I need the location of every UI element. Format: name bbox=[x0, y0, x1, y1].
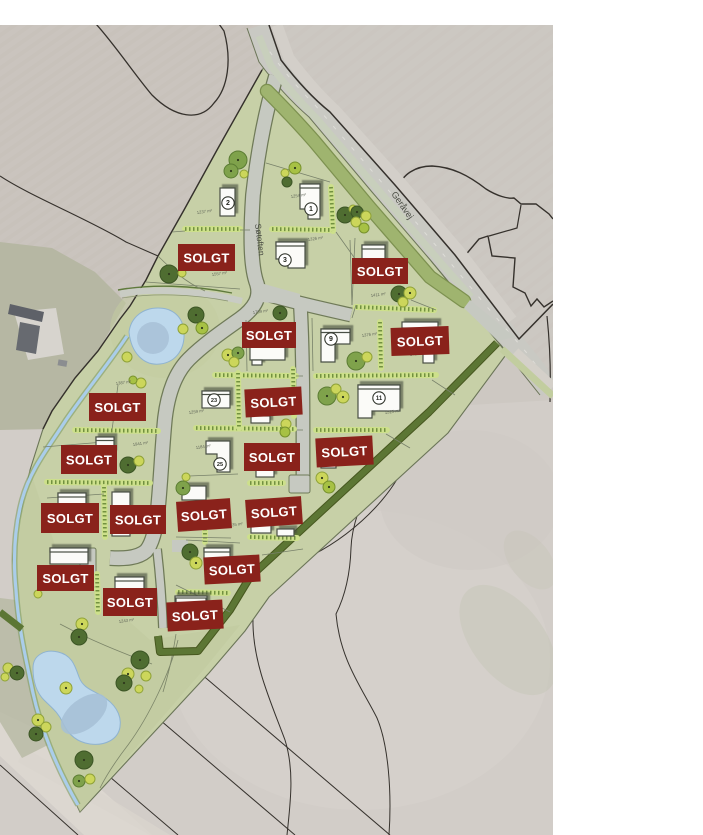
svg-text:SOLGT: SOLGT bbox=[357, 264, 403, 279]
svg-text:SOLGT: SOLGT bbox=[250, 503, 297, 521]
svg-text:11: 11 bbox=[376, 396, 383, 402]
svg-text:SOLGT: SOLGT bbox=[115, 512, 161, 527]
svg-text:2: 2 bbox=[226, 200, 230, 207]
svg-text:SOLGT: SOLGT bbox=[66, 452, 112, 467]
svg-text:SOLGT: SOLGT bbox=[172, 607, 219, 624]
svg-text:SOLGT: SOLGT bbox=[47, 511, 93, 526]
svg-text:SOLGT: SOLGT bbox=[397, 333, 444, 350]
svg-text:SOLGT: SOLGT bbox=[249, 450, 295, 465]
svg-text:SOLGT: SOLGT bbox=[180, 506, 227, 524]
svg-text:SOLGT: SOLGT bbox=[183, 250, 229, 265]
svg-text:9: 9 bbox=[329, 336, 333, 343]
svg-text:SOLGT: SOLGT bbox=[209, 561, 256, 578]
svg-text:SOLGT: SOLGT bbox=[42, 571, 88, 586]
svg-text:SOLGT: SOLGT bbox=[94, 400, 140, 415]
svg-text:SOLGT: SOLGT bbox=[321, 443, 368, 460]
svg-text:1: 1 bbox=[309, 206, 313, 213]
svg-text:3: 3 bbox=[283, 257, 287, 264]
svg-text:23: 23 bbox=[211, 398, 217, 404]
svg-text:SOLGT: SOLGT bbox=[250, 394, 297, 411]
svg-text:25: 25 bbox=[217, 462, 223, 468]
svg-text:SOLGT: SOLGT bbox=[107, 595, 153, 610]
svg-text:SOLGT: SOLGT bbox=[246, 328, 292, 343]
